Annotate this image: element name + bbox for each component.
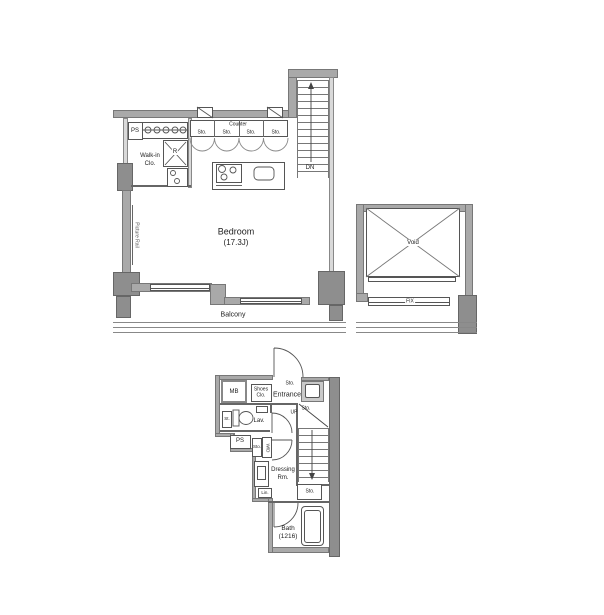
balcony-railing	[113, 322, 346, 334]
dressing-label-2: Rm.	[278, 475, 289, 481]
sto-stairs-top-label: Sto.	[302, 407, 311, 412]
entrance-label: Entrance	[273, 392, 301, 399]
balcony-label: Balcony	[221, 312, 246, 319]
upper-right-wall	[329, 77, 334, 272]
bath-label: Bath	[281, 526, 294, 533]
counter-sto-2: Sto.	[223, 131, 232, 136]
counter-divider-3	[263, 120, 264, 137]
dressing-door-arc	[272, 440, 292, 460]
stove-line	[216, 185, 242, 186]
partition-entrance-row	[220, 403, 298, 405]
upper-right-column-stem	[329, 305, 343, 321]
partition-lav-bottom	[220, 430, 270, 432]
wall-hatch-1	[197, 107, 213, 118]
counter-label: Counter	[229, 123, 247, 128]
void-bottom-left-wall	[356, 293, 368, 302]
wd-label: W/D	[265, 444, 270, 453]
counter-sto-1: Sto.	[198, 131, 207, 136]
upper-left-wall-low	[122, 190, 131, 273]
sto-entrance-label: Sto.	[286, 382, 295, 387]
lower-bottom-wall	[268, 547, 329, 553]
counter-sto-4: Sto.	[272, 131, 281, 136]
bath-door-arc	[274, 503, 298, 527]
lower-left-wall-1	[215, 375, 220, 437]
fixture-box	[167, 168, 188, 187]
ps-upper-label: PS	[131, 128, 139, 134]
entrance-door-arc	[274, 348, 303, 377]
stove	[216, 164, 242, 183]
void-railing	[356, 322, 477, 334]
bedroom-window-left	[150, 284, 210, 291]
upper-stair-left-wall	[288, 77, 297, 118]
lower-stairs	[298, 428, 329, 482]
bedroom-window-right	[240, 298, 302, 304]
bathtub-inner	[304, 510, 321, 543]
walkin-label-2: Clo.	[145, 161, 156, 167]
lower-right-wall	[329, 377, 340, 557]
floor-plan: PS Counter Sto. Sto. Sto. Sto. R Walk-in…	[0, 0, 604, 615]
mb-label: MB	[230, 389, 239, 395]
upper-right-column	[318, 271, 345, 305]
bedroom-size-label: (17.3J)	[224, 239, 249, 247]
lav-door-arc	[272, 413, 292, 433]
counter-sto-3: Sto.	[247, 131, 256, 136]
counter-divider-1	[214, 120, 215, 137]
upper-stairs	[297, 80, 329, 178]
lin-label: Lin.	[261, 491, 268, 496]
up-label: UP	[291, 411, 298, 416]
lav-cistern	[256, 406, 268, 413]
wall-hatch-2	[267, 107, 283, 118]
void-right-wall	[465, 204, 473, 303]
refrigerator-label: R	[172, 149, 178, 155]
ps-lower-label: PS	[236, 438, 244, 444]
picture-rail-label: Picture Rail	[134, 222, 139, 248]
washer-inner	[257, 466, 266, 480]
bedroom-label: Bedroom	[218, 228, 255, 237]
void-label: Void	[406, 240, 420, 246]
sto-wd-label: Sto.	[253, 445, 261, 450]
dn-label: DN	[305, 165, 316, 171]
sto-under-stairs-label: Sto.	[306, 490, 315, 495]
partition-bath-top	[268, 501, 329, 503]
entrance-storage-inner	[305, 384, 320, 398]
shoes-label-2: Clo.	[257, 394, 266, 399]
fix-label: FIX	[405, 300, 415, 305]
lav-label: Lav.	[254, 418, 265, 424]
dressing-label-1: Dressing	[271, 467, 295, 473]
counter-door-arcs	[190, 138, 288, 151]
void-shelf	[368, 277, 456, 282]
partition-lav-stub	[270, 403, 272, 413]
toilet	[233, 410, 253, 426]
lower-left-wall-4	[268, 498, 273, 553]
bath-size-label: (1216)	[279, 534, 298, 541]
upper-left-column-stem	[116, 296, 131, 318]
hanger-closet	[142, 122, 188, 139]
st-label: St.	[224, 417, 230, 422]
void-left-wall	[356, 204, 364, 302]
walkin-label-1: Walk-in	[140, 153, 160, 159]
